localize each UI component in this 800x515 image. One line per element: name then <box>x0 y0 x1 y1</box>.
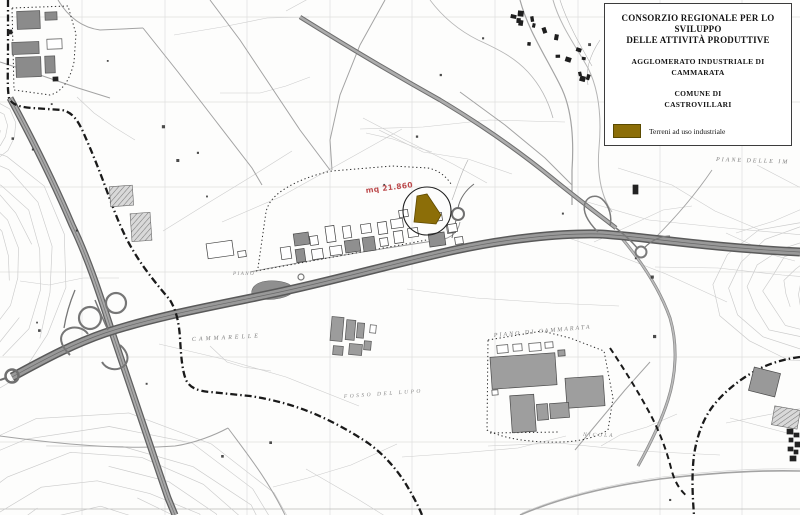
farmhouse-dot <box>440 74 442 76</box>
hamlet-building <box>556 55 561 58</box>
hamlet-building <box>518 20 523 26</box>
building <box>360 223 371 233</box>
map-label-piano: PIANO <box>232 272 255 277</box>
building <box>349 343 363 355</box>
building <box>12 42 39 55</box>
title-panel: CONSORZIO REGIONALE PER LO SVILUPPO DELL… <box>604 3 792 146</box>
farmhouse-dot <box>51 103 53 105</box>
legend-swatch <box>614 125 640 137</box>
building <box>558 350 565 356</box>
building <box>794 433 799 437</box>
building <box>330 317 344 342</box>
farmhouse-dot <box>146 383 148 385</box>
farmhouse-dot <box>162 125 165 128</box>
building <box>529 343 542 352</box>
building <box>794 450 798 454</box>
building <box>333 346 344 356</box>
comune-subtitle-line2: CASTROVILLARI <box>605 99 791 110</box>
building <box>345 320 356 341</box>
building <box>490 353 557 389</box>
building <box>390 218 403 229</box>
building <box>787 429 793 434</box>
farmhouse-dot <box>107 60 109 62</box>
building <box>45 12 57 20</box>
hamlet-building <box>527 42 531 46</box>
building <box>545 342 553 349</box>
farmhouse-dot <box>36 322 38 324</box>
plan-sheet: mq 21.860 PIANO CAMMARELLE FOSSO DEL LUP… <box>0 0 800 515</box>
building <box>8 30 12 34</box>
building <box>565 376 605 409</box>
hamlet-building <box>582 57 586 61</box>
building <box>497 345 509 354</box>
building <box>293 232 310 246</box>
consortium-title-line1: CONSORZIO REGIONALE PER LO SVILUPPO <box>605 13 791 35</box>
farmhouse-dot <box>482 37 484 39</box>
farmhouse-dot <box>653 335 656 338</box>
farmhouse-dot <box>38 329 41 332</box>
consortium-title-line2: DELLE ATTIVITÀ PRODUTTIVE <box>605 35 791 46</box>
building <box>795 442 800 447</box>
farmhouse-dot <box>416 135 418 137</box>
building <box>295 248 306 262</box>
building <box>309 235 318 245</box>
building <box>536 404 548 421</box>
building <box>356 323 364 339</box>
building <box>238 250 247 257</box>
farmhouse-dot <box>221 455 224 458</box>
building <box>362 236 376 252</box>
farmhouse-dot <box>12 137 14 139</box>
farmhouse-dot <box>206 196 208 198</box>
building <box>45 56 56 73</box>
farmhouse-dot <box>197 152 199 154</box>
building <box>16 57 42 78</box>
building <box>47 39 62 50</box>
building <box>393 230 404 243</box>
building <box>17 11 41 30</box>
farmhouse-dot <box>669 499 671 501</box>
map-label-nicola: NICOLA <box>582 432 615 439</box>
legend-swatch-svg <box>614 125 640 137</box>
building <box>492 390 498 395</box>
farmhouse-dot <box>562 213 564 215</box>
building <box>329 245 342 256</box>
building <box>513 344 522 352</box>
legend-row: Terreni ad uso industriale <box>614 125 791 137</box>
building <box>364 341 372 351</box>
building <box>789 438 793 442</box>
building <box>53 77 58 81</box>
legend-label: Terreni ad uso industriale <box>649 127 725 136</box>
building <box>280 246 292 259</box>
agglomerate-subtitle-line1: AGGLOMERATO INDUSTRIALE DI <box>605 56 791 67</box>
farmhouse-dot <box>588 43 591 46</box>
building <box>788 447 793 451</box>
farmhouse-dot <box>76 230 78 232</box>
building <box>206 240 234 258</box>
hamlet-building <box>518 10 524 16</box>
building <box>633 185 638 194</box>
building <box>510 394 537 433</box>
farmhouse-dot <box>651 276 654 279</box>
building <box>790 456 796 461</box>
farmhouse-dot <box>176 159 179 162</box>
comune-subtitle-line1: COMUNE DI <box>605 88 791 99</box>
agglomerate-subtitle-line2: CAMMARATA <box>605 67 791 78</box>
building <box>549 402 569 418</box>
building <box>447 223 457 232</box>
building <box>342 226 352 239</box>
building <box>455 236 464 244</box>
building <box>377 221 388 234</box>
building <box>311 248 323 259</box>
building <box>325 225 336 242</box>
farmhouse-dot <box>269 441 272 444</box>
farmhouse-dot <box>635 257 637 259</box>
farmhouse-dot <box>32 149 34 151</box>
building <box>379 237 388 246</box>
building <box>370 325 377 333</box>
building <box>344 239 361 253</box>
